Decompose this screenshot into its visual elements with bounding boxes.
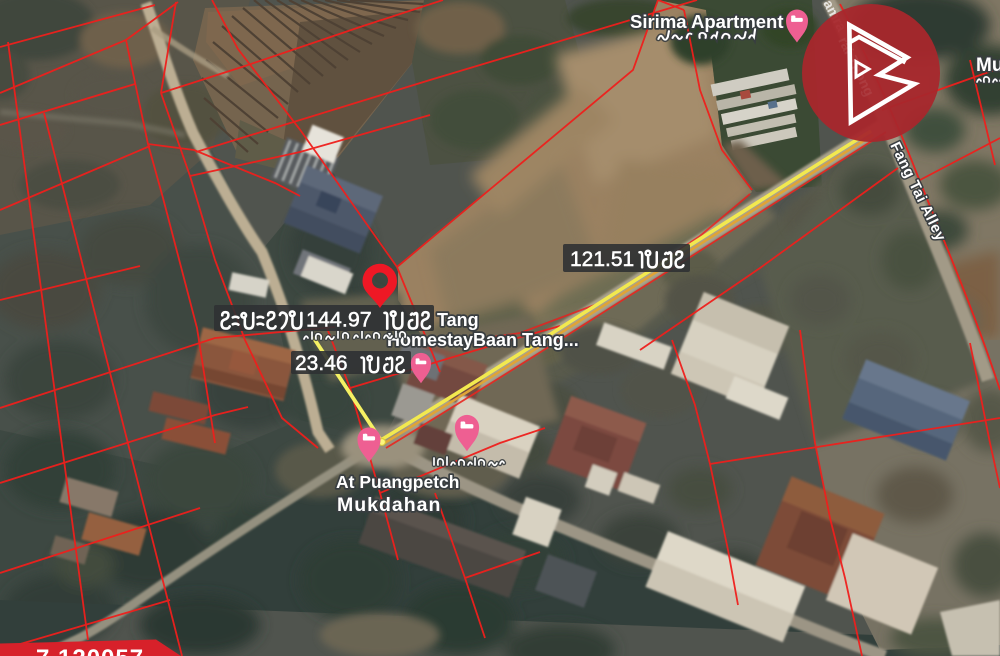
svg-text:At Puangpetch: At Puangpetch (336, 472, 459, 492)
svg-text:Tang: Tang (437, 310, 479, 330)
svg-text:23.46: 23.46 (295, 352, 348, 375)
svg-text:Mukdahan: Mukdahan (337, 494, 441, 516)
svg-text:144.97: 144.97 (306, 308, 372, 332)
svg-text:121.51: 121.51 (570, 248, 634, 271)
svg-text:HomestayBaan Tang...: HomestayBaan Tang... (387, 330, 579, 350)
svg-text:Mu: Mu (976, 55, 1000, 76)
svg-text:Sirima Apartment: Sirima Apartment (630, 11, 784, 32)
svg-text:7.120057: 7.120057 (36, 645, 144, 656)
